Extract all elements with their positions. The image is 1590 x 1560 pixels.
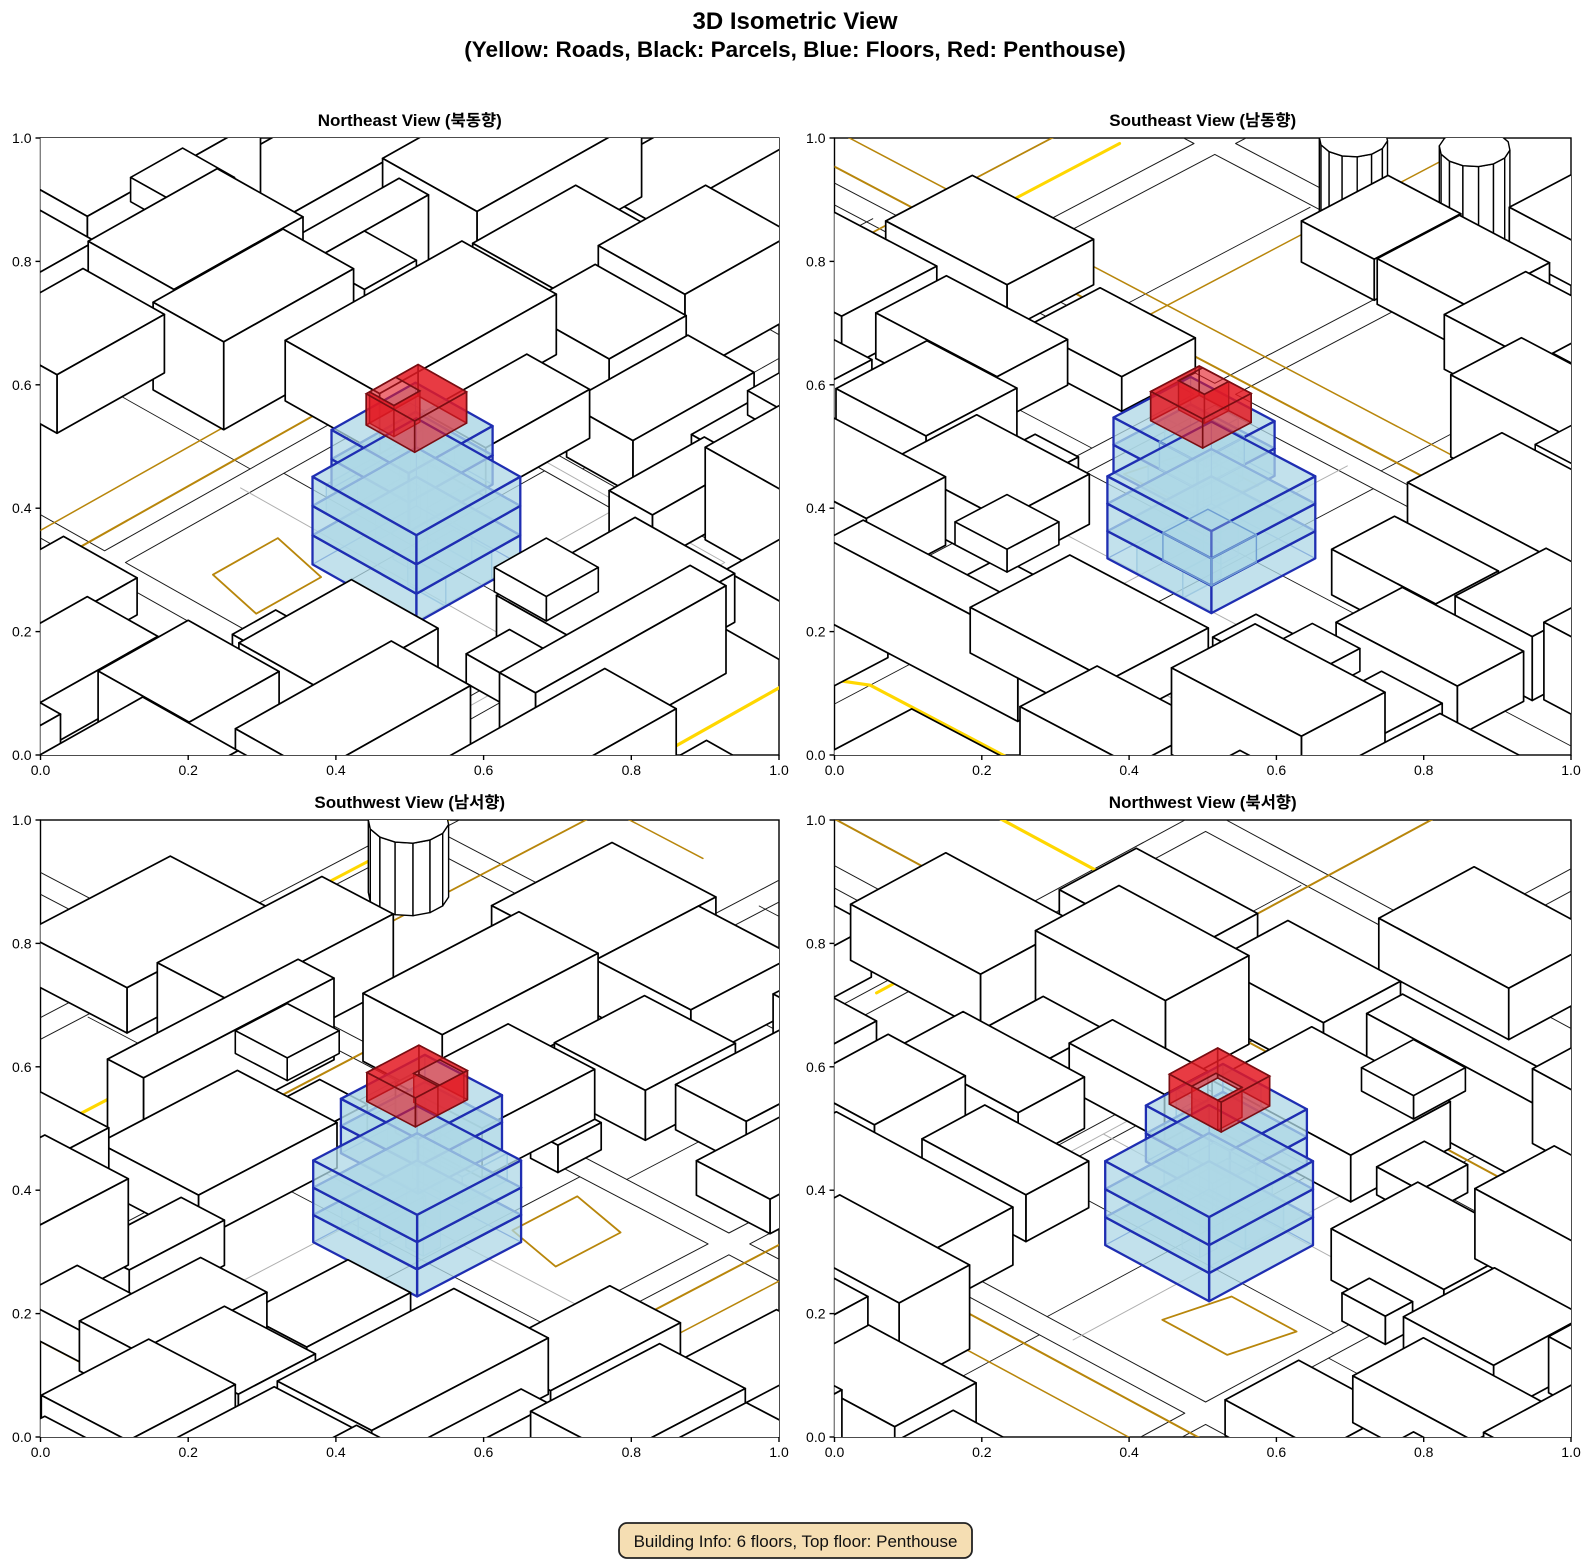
svg-text:0.4: 0.4 — [1119, 1444, 1139, 1460]
svg-text:Northeast View (: Northeast View ( — [318, 111, 451, 130]
svg-text:1.0: 1.0 — [1561, 1444, 1581, 1460]
svg-text:0.2: 0.2 — [806, 624, 826, 640]
svg-text:Building Info: 6 floors, Top f: Building Info: 6 floors, Top floor: Pent… — [634, 1532, 958, 1551]
svg-text:0.0: 0.0 — [31, 762, 51, 778]
svg-text:): ) — [1291, 111, 1297, 130]
svg-text:0.6: 0.6 — [1267, 762, 1287, 778]
svg-text:1.0: 1.0 — [12, 812, 32, 828]
svg-text:0.4: 0.4 — [12, 1182, 32, 1198]
svg-text:Southwest View (: Southwest View ( — [314, 793, 454, 812]
svg-text:0.4: 0.4 — [326, 1444, 346, 1460]
svg-text:0.6: 0.6 — [12, 377, 32, 393]
svg-text:3D Isometric View: 3D Isometric View — [693, 8, 898, 35]
svg-text:0.0: 0.0 — [825, 1444, 845, 1460]
svg-text:0.0: 0.0 — [12, 1429, 32, 1445]
svg-text:1.0: 1.0 — [769, 762, 789, 778]
svg-text:0.0: 0.0 — [31, 1444, 51, 1460]
svg-text:1.0: 1.0 — [1561, 762, 1581, 778]
svg-text:1.0: 1.0 — [769, 1444, 789, 1460]
svg-text:0.2: 0.2 — [972, 762, 992, 778]
svg-text:Southeast View (: Southeast View ( — [1109, 111, 1245, 130]
svg-text:0.2: 0.2 — [12, 1306, 32, 1322]
svg-text:0.4: 0.4 — [1119, 762, 1139, 778]
svg-text:0.6: 0.6 — [474, 762, 494, 778]
svg-text:0.8: 0.8 — [1414, 762, 1434, 778]
svg-text:0.8: 0.8 — [806, 253, 826, 269]
svg-text:0.6: 0.6 — [12, 1059, 32, 1075]
svg-text:0.8: 0.8 — [12, 253, 32, 269]
svg-text:1.0: 1.0 — [806, 130, 826, 146]
svg-text:0.2: 0.2 — [972, 1444, 992, 1460]
svg-text:0.6: 0.6 — [1267, 1444, 1287, 1460]
svg-text:0.0: 0.0 — [806, 1429, 826, 1445]
svg-text:(Yellow: Roads, Black: Parcels: (Yellow: Roads, Black: Parcels, Blue: Fl… — [464, 37, 1125, 62]
svg-text:0.8: 0.8 — [806, 935, 826, 951]
svg-text:0.6: 0.6 — [806, 1059, 826, 1075]
svg-text:0.6: 0.6 — [474, 1444, 494, 1460]
svg-text:0.0: 0.0 — [806, 747, 826, 763]
svg-text:0.4: 0.4 — [806, 1182, 826, 1198]
svg-text:0.4: 0.4 — [326, 762, 346, 778]
svg-text:0.2: 0.2 — [178, 1444, 198, 1460]
svg-text:0.8: 0.8 — [1414, 1444, 1434, 1460]
svg-text:0.4: 0.4 — [806, 500, 826, 516]
svg-text:): ) — [1291, 793, 1297, 812]
svg-text:): ) — [496, 111, 502, 130]
svg-text:0.8: 0.8 — [622, 1444, 642, 1460]
svg-text:1.0: 1.0 — [806, 812, 826, 828]
svg-text:0.0: 0.0 — [825, 762, 845, 778]
svg-text:1.0: 1.0 — [12, 130, 32, 146]
svg-text:0.2: 0.2 — [178, 762, 198, 778]
svg-text:0.0: 0.0 — [12, 747, 32, 763]
svg-text:0.2: 0.2 — [806, 1306, 826, 1322]
svg-text:0.6: 0.6 — [806, 377, 826, 393]
svg-text:): ) — [499, 793, 505, 812]
svg-text:0.8: 0.8 — [622, 762, 642, 778]
svg-text:0.8: 0.8 — [12, 935, 32, 951]
svg-text:0.4: 0.4 — [12, 500, 32, 516]
svg-text:Northwest View (: Northwest View ( — [1109, 793, 1246, 812]
svg-text:0.2: 0.2 — [12, 624, 32, 640]
